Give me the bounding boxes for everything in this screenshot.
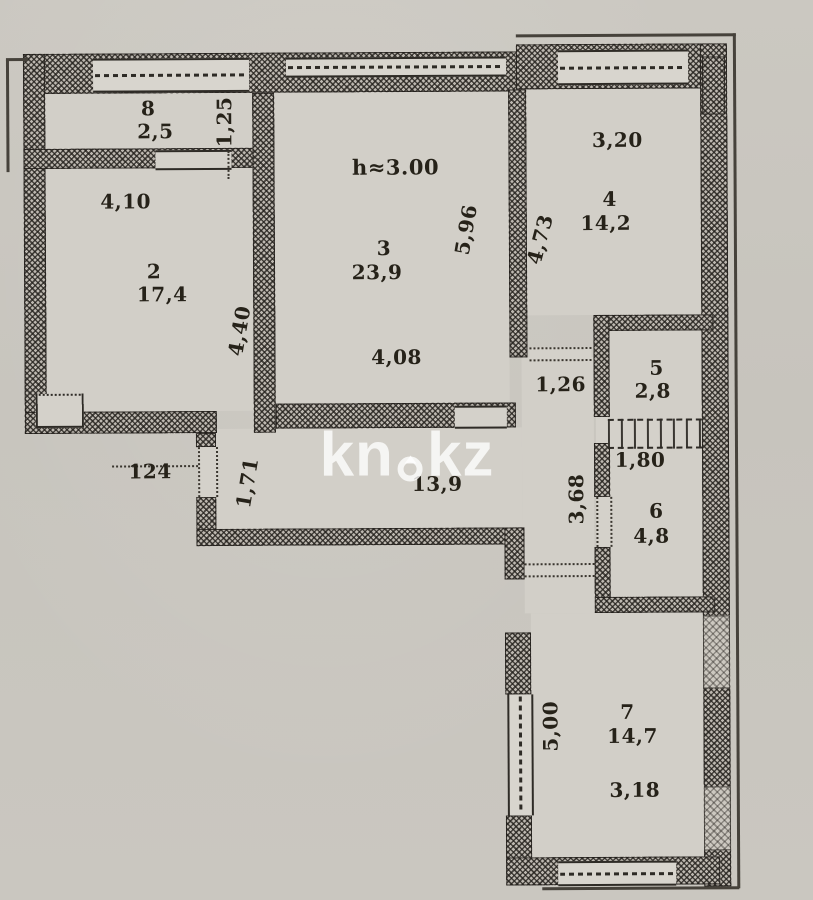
room-6-number: 6 [649,499,664,523]
dim-1-25: 1,25 [212,97,236,148]
wall-hall-bottom [196,527,522,546]
watermark-text-left: kn [320,427,394,486]
wall-right-pier-top [702,56,725,114]
wall-hall-step-upper [196,433,216,447]
dim-1-26: 1,26 [535,372,586,396]
water-drop-icon [398,456,423,481]
dim-1-24: 124 [128,459,171,483]
dim-3-20: 3,20 [592,128,643,152]
contour-left-vertical [6,60,10,172]
contour-top-right [516,33,736,37]
kn-kz-watermark: kn kz [320,427,495,486]
room-3-height-note: h≈3.00 [352,154,439,179]
room-8-number: 8 [141,96,156,120]
dim-5-00: 5,00 [538,701,562,752]
room-2-area: 17,4 [137,282,188,306]
door-room7-hall [525,563,595,577]
wall-left-outer [23,54,47,434]
room-5-area: 2,8 [634,379,670,403]
wall-room5-top [593,314,713,331]
wall-between-room3-room4 [508,89,527,357]
window-room7-right-lower [704,786,731,850]
door-room4-hall [529,347,591,361]
wall-room7-left-upper [505,632,531,694]
window-room7-left [507,694,534,815]
dim-1-80: 1,80 [615,448,666,472]
door-room8 [155,150,231,170]
watermark-text-right: kz [427,427,494,486]
room-6-area: 4,8 [633,524,669,548]
wall-between-room2-room3 [252,93,276,433]
dim-3-68: 3,68 [564,474,588,525]
room-3-number: 3 [377,236,392,260]
dim-4-08: 4,08 [371,345,422,369]
window-room4-top [558,50,688,86]
contour-bottom [542,886,739,890]
window-room3-top [286,56,506,77]
room-3-area: 23,9 [352,260,403,284]
door-room5 [596,417,608,443]
window-room7-right-upper [703,615,730,688]
dim-4-10: 4,10 [100,189,151,213]
window-room8-top [93,58,249,93]
room-5-number: 5 [649,356,664,380]
room-2-number: 2 [147,259,162,283]
window-room7-bottom [558,861,676,887]
contour-right-vertical [733,33,740,888]
room-4-number: 4 [602,187,617,211]
wall-room6-bottom [595,596,715,613]
room-4-area: 14,2 [580,211,631,235]
door-room2-hall [198,447,218,497]
room-7-number: 7 [620,700,635,724]
wall-hall-corner-block [504,527,524,579]
contour-left-cap [6,58,28,61]
wall-room5-left [593,315,610,417]
door-room6 [596,497,612,547]
wall-right-outer [700,43,731,886]
fixture-partition-room5-room6 [608,418,702,448]
floorplan-scan: 8 2,5 2 17,4 h≈3.00 3 23,9 4 14,2 5 2,8 … [0,0,813,900]
niche-room2-corner [36,394,84,428]
wall-room56-left-mid [594,443,610,497]
dim-3-18: 3,18 [609,778,660,802]
room-8-area: 2,5 [137,119,173,143]
room-7-area: 14,7 [607,724,658,748]
leader-line-1-25 [227,151,231,179]
